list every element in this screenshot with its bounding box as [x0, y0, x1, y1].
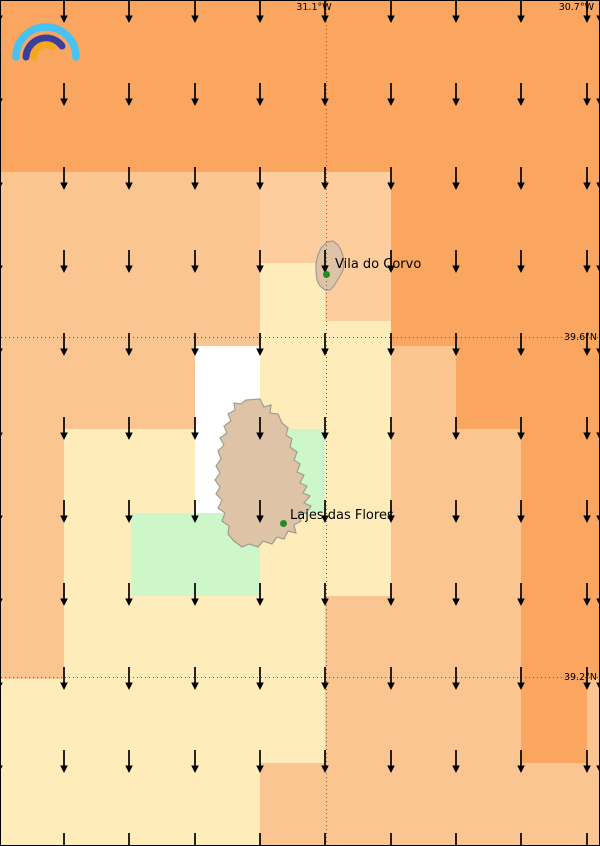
- wind-arrow-icon: [594, 248, 600, 274]
- wind-arrow-icon: [0, 165, 5, 191]
- wind-arrow-icon: [189, 498, 201, 524]
- wind-arrow-icon: [189, 248, 201, 274]
- wind-arrow-icon: [594, 0, 600, 24]
- wind-arrow-icon: [189, 581, 201, 607]
- wind-arrow-icon: [58, 665, 70, 691]
- logo-arc-inner-yellow: [34, 45, 53, 57]
- wind-arrow-icon: [254, 0, 266, 24]
- wind-arrow-icon: [450, 415, 462, 441]
- wind-arrow-icon: [0, 665, 5, 691]
- wind-arrow-icon: [58, 415, 70, 441]
- wind-arrow-icon: [254, 165, 266, 191]
- wind-arrow-icon: [515, 415, 527, 441]
- wind-arrow-icon: [515, 331, 527, 357]
- wind-arrow-icon: [123, 665, 135, 691]
- wind-arrow-icon: [450, 248, 462, 274]
- wind-arrow-icon: [450, 331, 462, 357]
- wind-arrow-icon: [594, 498, 600, 524]
- wind-arrow-icon: [450, 748, 462, 774]
- wind-arrow-icon: [385, 748, 397, 774]
- wind-arrow-icon: [123, 81, 135, 107]
- wind-arrow-icon: [189, 165, 201, 191]
- wind-arrow-icon: [515, 81, 527, 107]
- wind-arrow-icon: [581, 81, 593, 107]
- islands-layer: [1, 1, 600, 846]
- wind-arrow-icon: [123, 831, 135, 846]
- wind-arrow-icon: [581, 165, 593, 191]
- wind-arrow-icon: [581, 581, 593, 607]
- wind-arrow-icon: [189, 748, 201, 774]
- wind-arrow-icon: [58, 748, 70, 774]
- wind-arrow-icon: [254, 415, 266, 441]
- wind-arrow-icon: [581, 748, 593, 774]
- wind-arrow-icon: [0, 748, 5, 774]
- coordinate-label: 39.2°N: [557, 672, 597, 683]
- coordinate-label: 30.7°W: [554, 2, 594, 13]
- wind-arrow-icon: [0, 331, 5, 357]
- wind-arrow-icon: [319, 665, 331, 691]
- wind-arrow-icon: [319, 165, 331, 191]
- wind-arrow-icon: [594, 748, 600, 774]
- wind-arrow-icon: [123, 581, 135, 607]
- wind-arrow-icon: [319, 415, 331, 441]
- wind-arrow-icon: [581, 831, 593, 846]
- rainbow-logo-icon: [5, 9, 85, 69]
- wind-arrow-icon: [581, 498, 593, 524]
- wind-arrow-icon: [385, 665, 397, 691]
- wind-arrow-icon: [254, 748, 266, 774]
- wind-arrow-icon: [0, 415, 5, 441]
- wind-arrow-icon: [254, 498, 266, 524]
- wind-arrow-icon: [58, 498, 70, 524]
- wind-arrow-icon: [189, 665, 201, 691]
- wind-arrow-icon: [450, 165, 462, 191]
- wind-arrow-icon: [189, 0, 201, 24]
- wind-arrow-icon: [123, 0, 135, 24]
- wind-arrow-icon: [594, 581, 600, 607]
- wind-arrow-icon: [319, 581, 331, 607]
- wind-arrow-icon: [319, 81, 331, 107]
- wind-arrow-icon: [515, 498, 527, 524]
- wind-arrow-icon: [385, 415, 397, 441]
- wind-arrow-icon: [123, 331, 135, 357]
- wind-arrow-icon: [254, 581, 266, 607]
- wind-arrow-icon: [189, 331, 201, 357]
- wind-arrow-icon: [0, 831, 5, 846]
- weather-map: Vila do CorvoLajes das Flores 31.1°W30.7…: [0, 0, 600, 846]
- wind-arrow-icon: [385, 165, 397, 191]
- wind-arrow-icon: [58, 831, 70, 846]
- wind-arrow-icon: [450, 81, 462, 107]
- wind-arrow-icon: [0, 81, 5, 107]
- wind-arrow-icon: [515, 748, 527, 774]
- wind-arrow-icon: [189, 831, 201, 846]
- wind-arrow-icon: [58, 81, 70, 107]
- wind-arrow-icon: [385, 0, 397, 24]
- coordinate-label: 39.6°N: [557, 332, 597, 343]
- wind-arrow-icon: [189, 81, 201, 107]
- wind-arrow-icon: [450, 581, 462, 607]
- wind-arrow-icon: [450, 831, 462, 846]
- wind-arrow-icon: [319, 331, 331, 357]
- wind-arrow-icon: [58, 331, 70, 357]
- wind-arrow-icon: [123, 498, 135, 524]
- wind-arrow-icon: [189, 415, 201, 441]
- place-label: Vila do Corvo: [335, 257, 421, 272]
- coordinate-label: 31.1°W: [296, 2, 331, 13]
- wind-arrow-icon: [123, 415, 135, 441]
- wind-arrow-icon: [515, 665, 527, 691]
- wind-arrow-icon: [254, 248, 266, 274]
- wind-arrow-icon: [594, 81, 600, 107]
- wind-arrow-icon: [58, 165, 70, 191]
- wind-arrow-icon: [254, 831, 266, 846]
- wind-arrow-icon: [123, 165, 135, 191]
- wind-arrow-icon: [385, 331, 397, 357]
- wind-arrow-icon: [0, 498, 5, 524]
- wind-arrow-icon: [450, 498, 462, 524]
- wind-arrow-icon: [515, 165, 527, 191]
- wind-arrow-icon: [515, 581, 527, 607]
- wind-arrow-icon: [594, 165, 600, 191]
- place-label: Lajes das Flores: [290, 508, 394, 523]
- wind-arrow-icon: [58, 581, 70, 607]
- wind-arrow-icon: [319, 748, 331, 774]
- wind-arrow-icon: [515, 248, 527, 274]
- parallel-gridline: [1, 677, 600, 678]
- wind-arrow-icon: [385, 81, 397, 107]
- place-dot: [323, 271, 330, 278]
- wind-arrow-icon: [0, 248, 5, 274]
- wind-arrow-icon: [515, 0, 527, 24]
- parallel-gridline: [1, 337, 600, 338]
- wind-arrow-icon: [594, 831, 600, 846]
- wind-arrow-icon: [450, 0, 462, 24]
- wind-arrow-icon: [123, 248, 135, 274]
- wind-arrow-icon: [581, 248, 593, 274]
- wind-arrow-icon: [0, 581, 5, 607]
- place-dot: [280, 520, 287, 527]
- wind-arrow-icon: [123, 748, 135, 774]
- wind-arrow-icon: [594, 415, 600, 441]
- wind-arrow-icon: [450, 665, 462, 691]
- wind-arrow-icon: [319, 831, 331, 846]
- wind-arrow-icon: [385, 831, 397, 846]
- wind-arrow-icon: [254, 331, 266, 357]
- wind-arrow-icon: [385, 581, 397, 607]
- wind-arrow-icon: [58, 248, 70, 274]
- wind-arrow-icon: [254, 665, 266, 691]
- wind-arrow-icon: [515, 831, 527, 846]
- wind-arrow-icon: [581, 415, 593, 441]
- wind-arrow-icon: [254, 81, 266, 107]
